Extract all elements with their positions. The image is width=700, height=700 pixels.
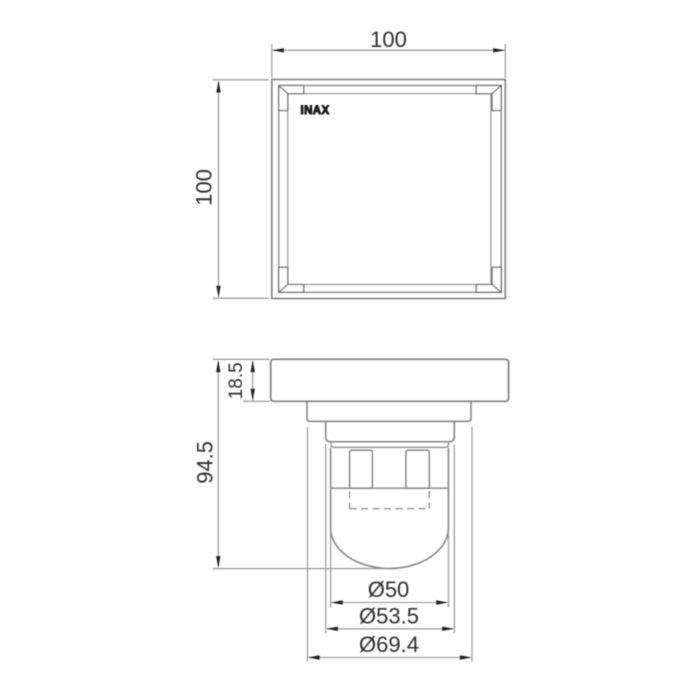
svg-text:Ø69.4: Ø69.4 bbox=[359, 632, 419, 657]
svg-text:18.5: 18.5 bbox=[226, 362, 247, 399]
svg-text:94.5: 94.5 bbox=[193, 441, 218, 484]
svg-text:INAX: INAX bbox=[301, 105, 330, 117]
svg-text:100: 100 bbox=[370, 27, 407, 52]
svg-text:100: 100 bbox=[191, 169, 216, 206]
svg-text:Ø50: Ø50 bbox=[368, 577, 410, 602]
svg-text:Ø53.5: Ø53.5 bbox=[359, 604, 419, 629]
